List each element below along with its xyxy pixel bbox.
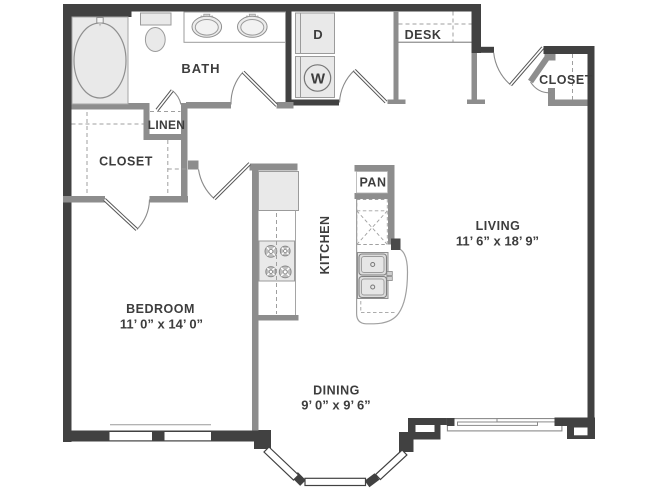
svg-text:BATH: BATH [181, 61, 220, 76]
svg-text:9’ 0” x 9’ 6”: 9’ 0” x 9’ 6” [301, 398, 370, 413]
svg-text:LIVING: LIVING [476, 219, 521, 233]
svg-text:11’ 0” x 14’ 0”: 11’ 0” x 14’ 0” [120, 317, 203, 332]
svg-text:LINEN: LINEN [148, 118, 186, 132]
svg-text:D: D [313, 27, 322, 42]
svg-text:KITCHEN: KITCHEN [318, 215, 332, 274]
svg-text:DINING: DINING [313, 384, 360, 398]
svg-text:CLOSET: CLOSET [539, 73, 593, 87]
svg-text:DESK: DESK [405, 28, 442, 42]
svg-text:BEDROOM: BEDROOM [126, 302, 195, 316]
svg-text:PAN: PAN [360, 176, 387, 190]
svg-text:W: W [311, 71, 326, 88]
svg-text:11’ 6” x 18’ 9”: 11’ 6” x 18’ 9” [456, 234, 539, 249]
svg-text:CLOSET: CLOSET [99, 155, 153, 169]
